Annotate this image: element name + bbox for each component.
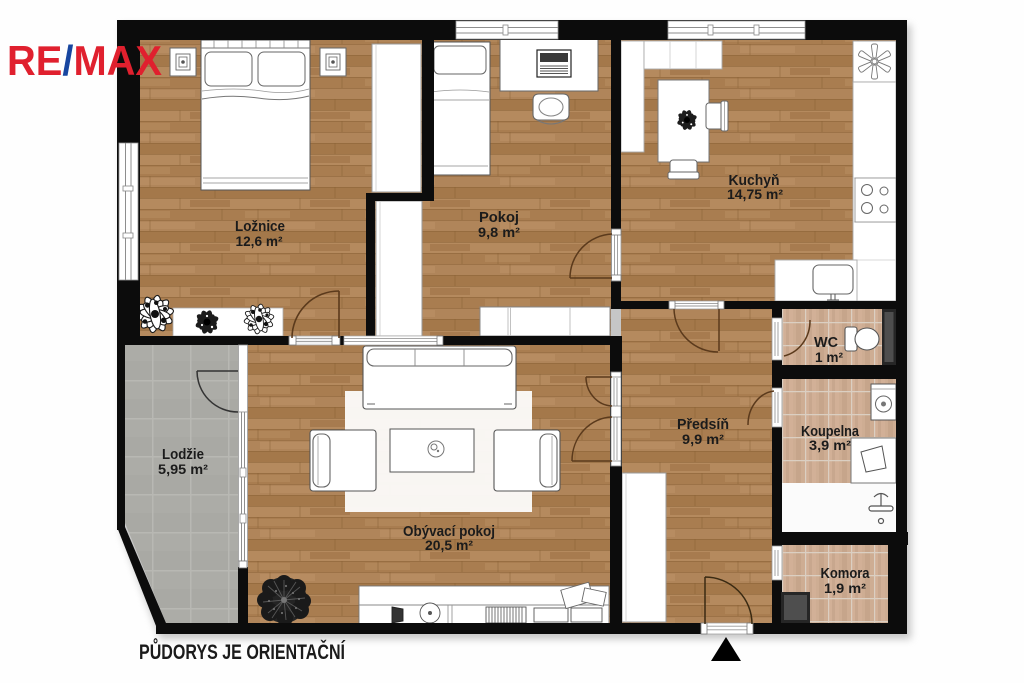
svg-text:5,95 m²: 5,95 m² [158,461,208,477]
svg-text:20,5 m²: 20,5 m² [425,537,473,553]
svg-text:12,6 m²: 12,6 m² [236,233,283,249]
svg-text:14,75 m²: 14,75 m² [727,186,783,202]
svg-text:9,8 m²: 9,8 m² [478,224,520,240]
svg-text:9,9 m²: 9,9 m² [682,431,724,447]
svg-text:RE/MAX: RE/MAX [7,37,162,84]
svg-text:1 m²: 1 m² [815,349,843,365]
svg-text:PŮDORYS JE ORIENTAČNÍ: PŮDORYS JE ORIENTAČNÍ [139,638,346,664]
svg-text:3,9 m²: 3,9 m² [809,437,851,453]
svg-text:1,9 m²: 1,9 m² [824,580,866,596]
